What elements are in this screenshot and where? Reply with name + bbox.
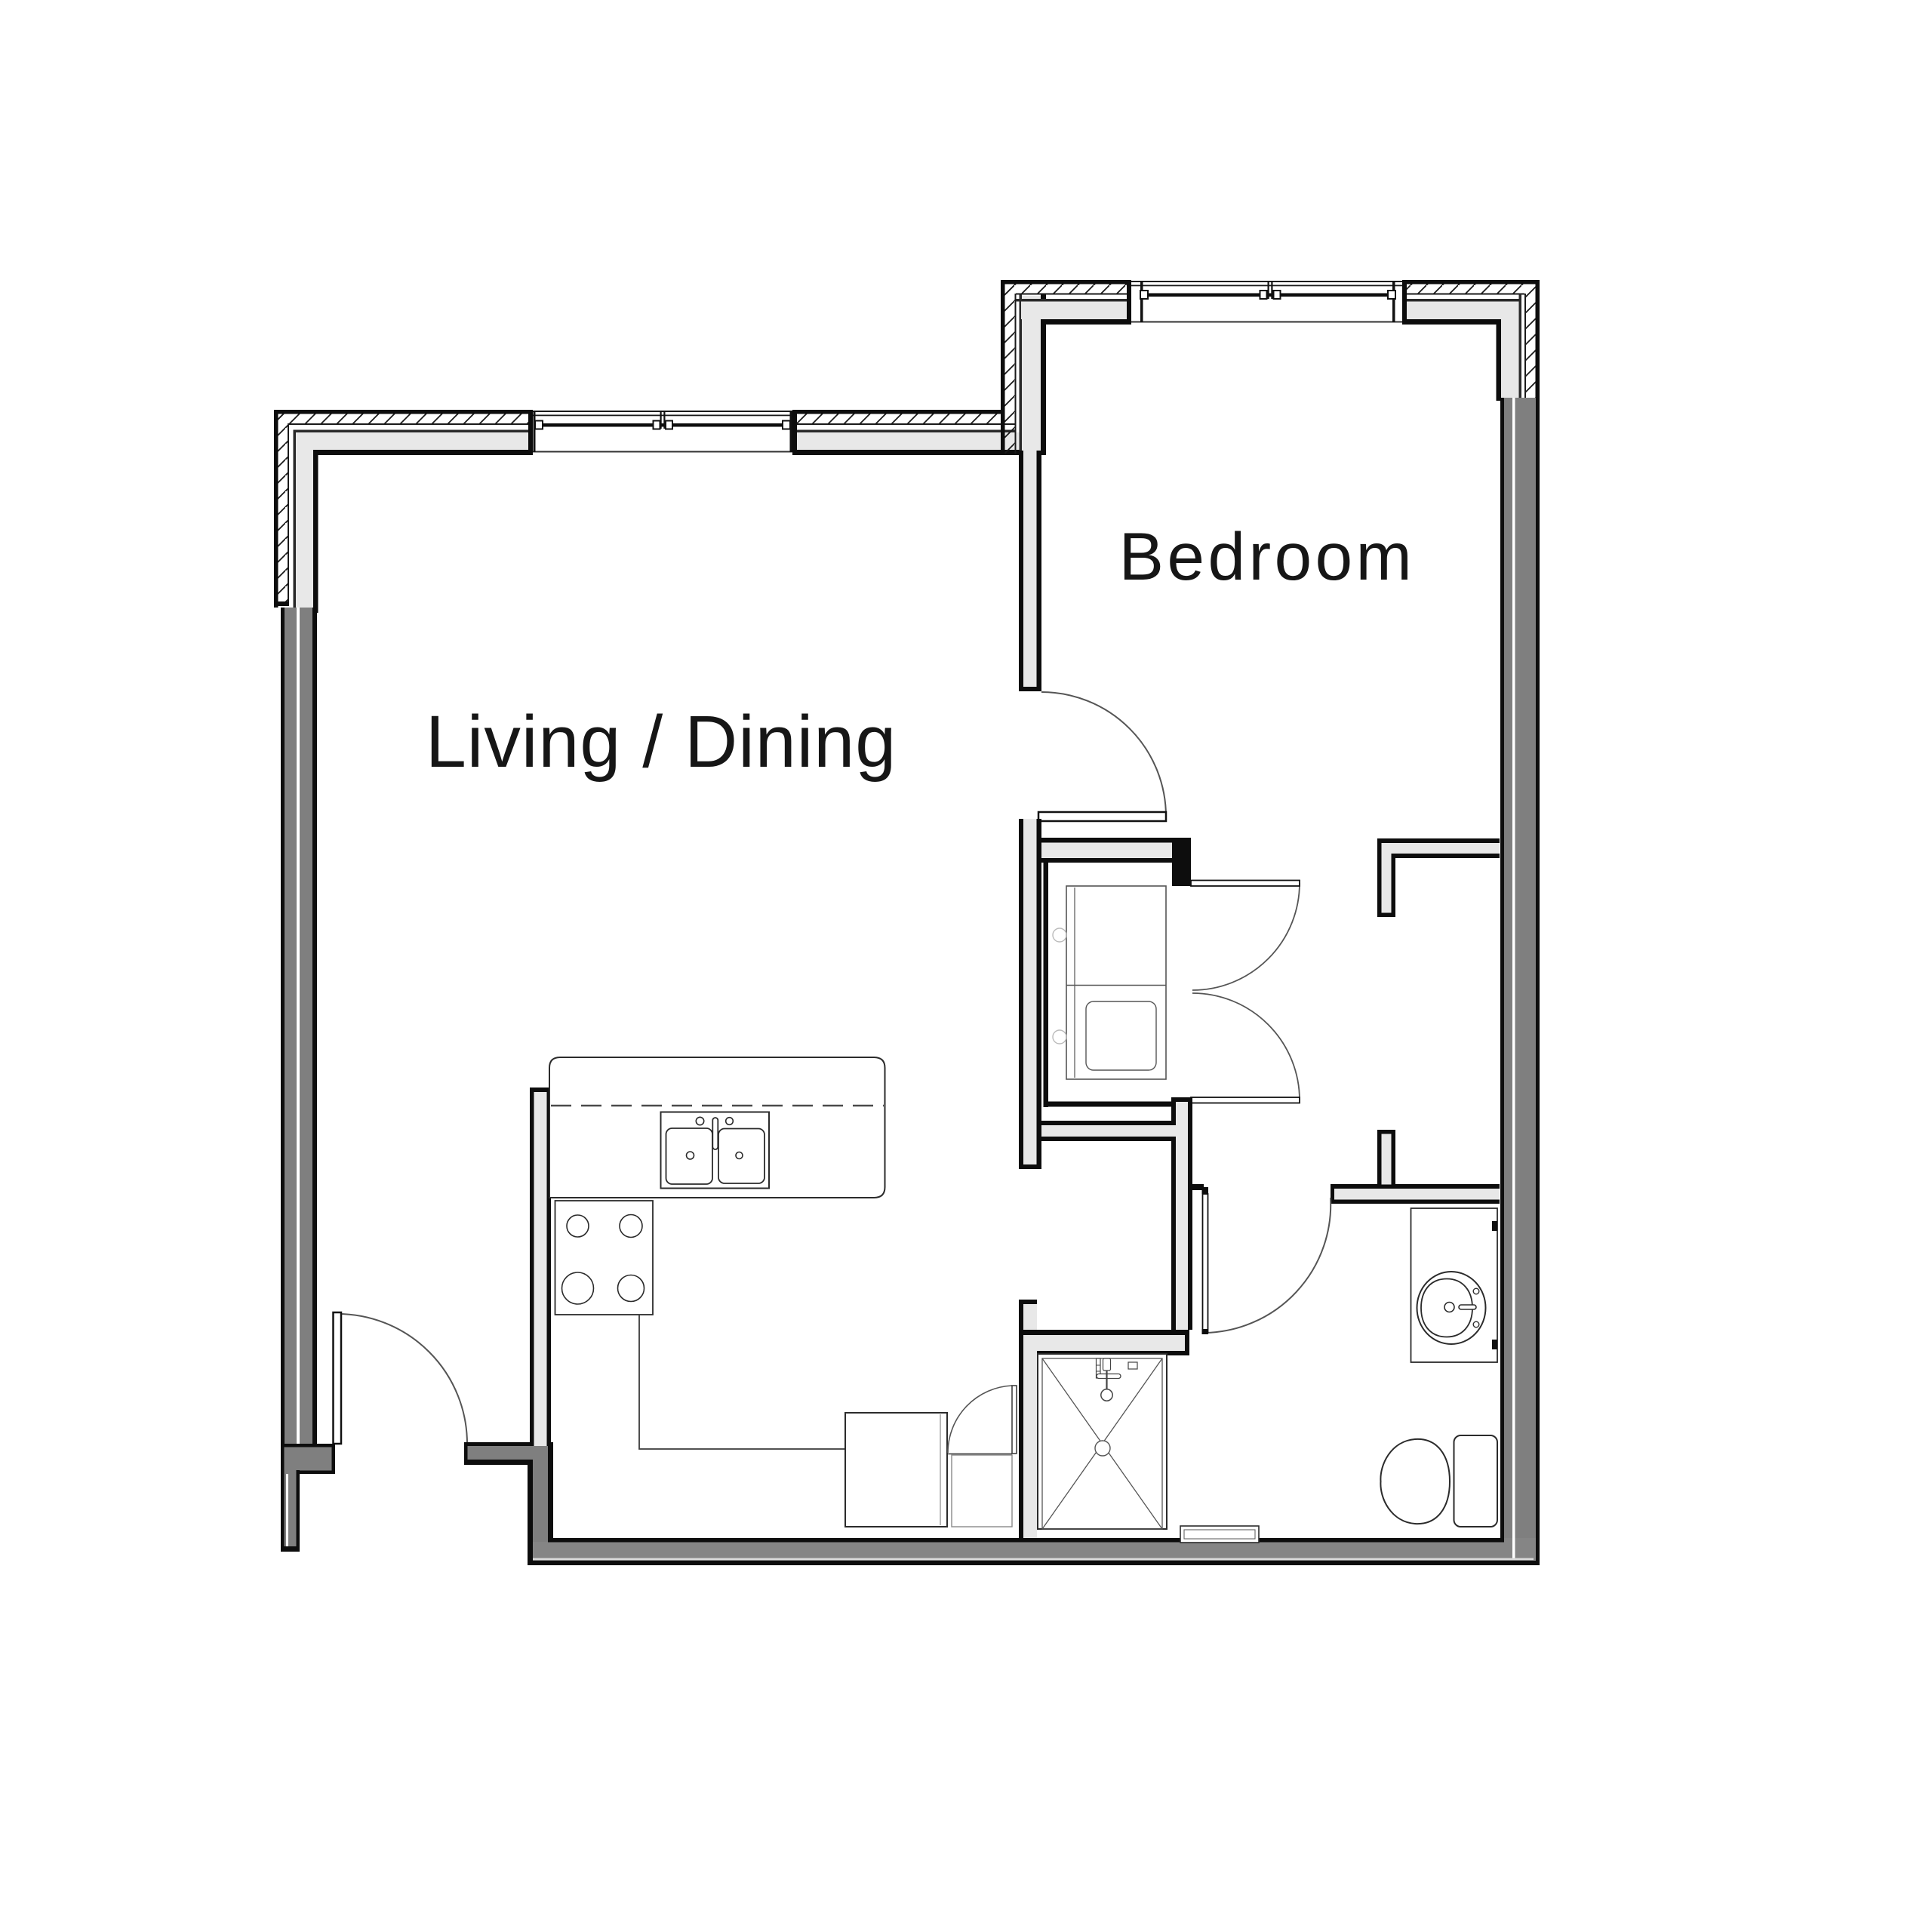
svg-text:Bedroom: Bedroom [1119,518,1416,594]
svg-text:Living / Dining: Living / Dining [426,700,897,783]
